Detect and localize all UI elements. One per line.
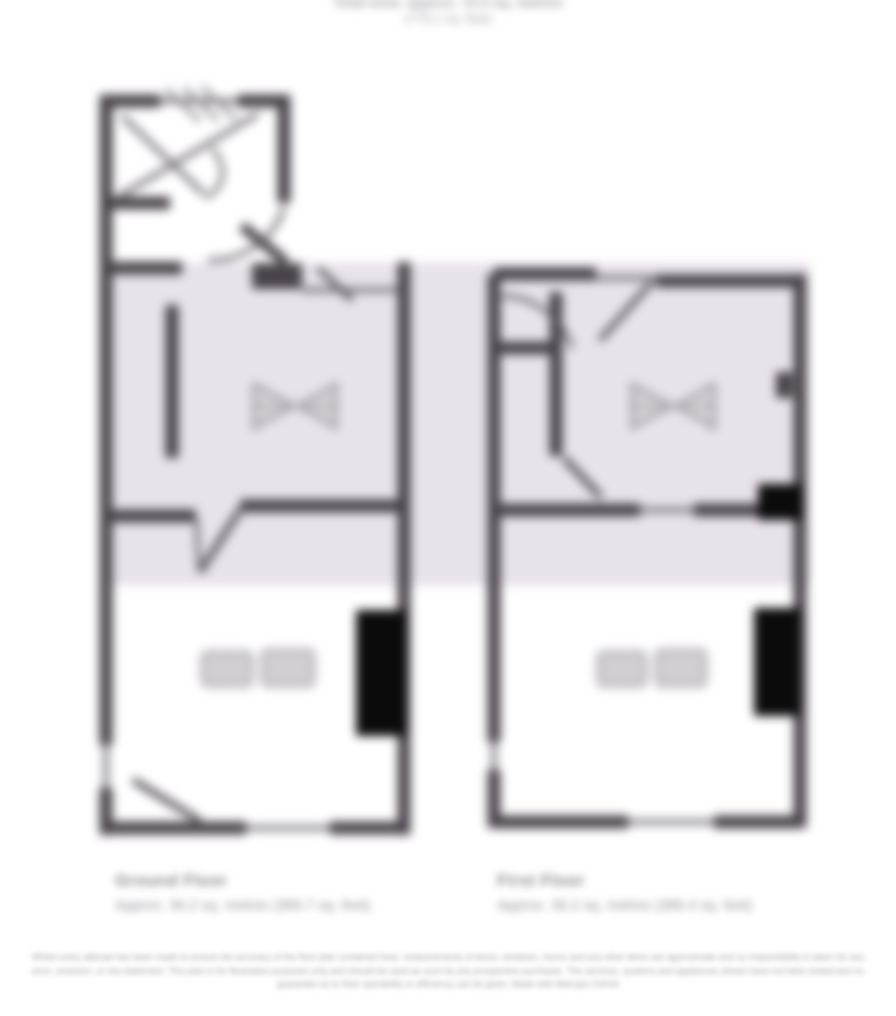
sink-icon [120,114,258,198]
first-floor-area: Approx. 36.2 sq. metres (389.4 sq. feet) [497,898,753,914]
wall [242,226,286,262]
chimney-block [356,610,406,736]
ground-floor-name: Ground Floor [115,871,371,891]
door-leaf-icon [133,780,200,821]
wall [238,101,284,203]
first-floor-label: First Floor Approx. 36.2 sq. metres (389… [497,871,753,914]
radiator-mark [776,372,792,398]
window-hatch-icon [166,87,236,121]
ground-floor-label: Ground Floor Approx. 36.2 sq. metres (38… [115,871,371,914]
room-symbol-bedroom [598,650,706,686]
ground-floor-area: Approx. 36.2 sq. metres (389.7 sq. feet) [115,898,371,914]
disclaimer-text: Whilst every attempt has been made to en… [23,951,873,992]
plan-title: Total area: approx. 72.4 sq. metres (779… [0,0,896,27]
plan-title-line1: Total area: approx. 72.4 sq. metres [0,0,896,11]
highlight-band [100,263,810,585]
floorplan-canvas [0,0,896,1016]
chimney-block [758,484,802,520]
plan-title-line2: (779.1 sq. feet) [0,11,896,27]
chimney-block [754,608,800,716]
first-floor-name: First Floor [497,871,753,891]
room-symbol-lounge [202,650,314,686]
